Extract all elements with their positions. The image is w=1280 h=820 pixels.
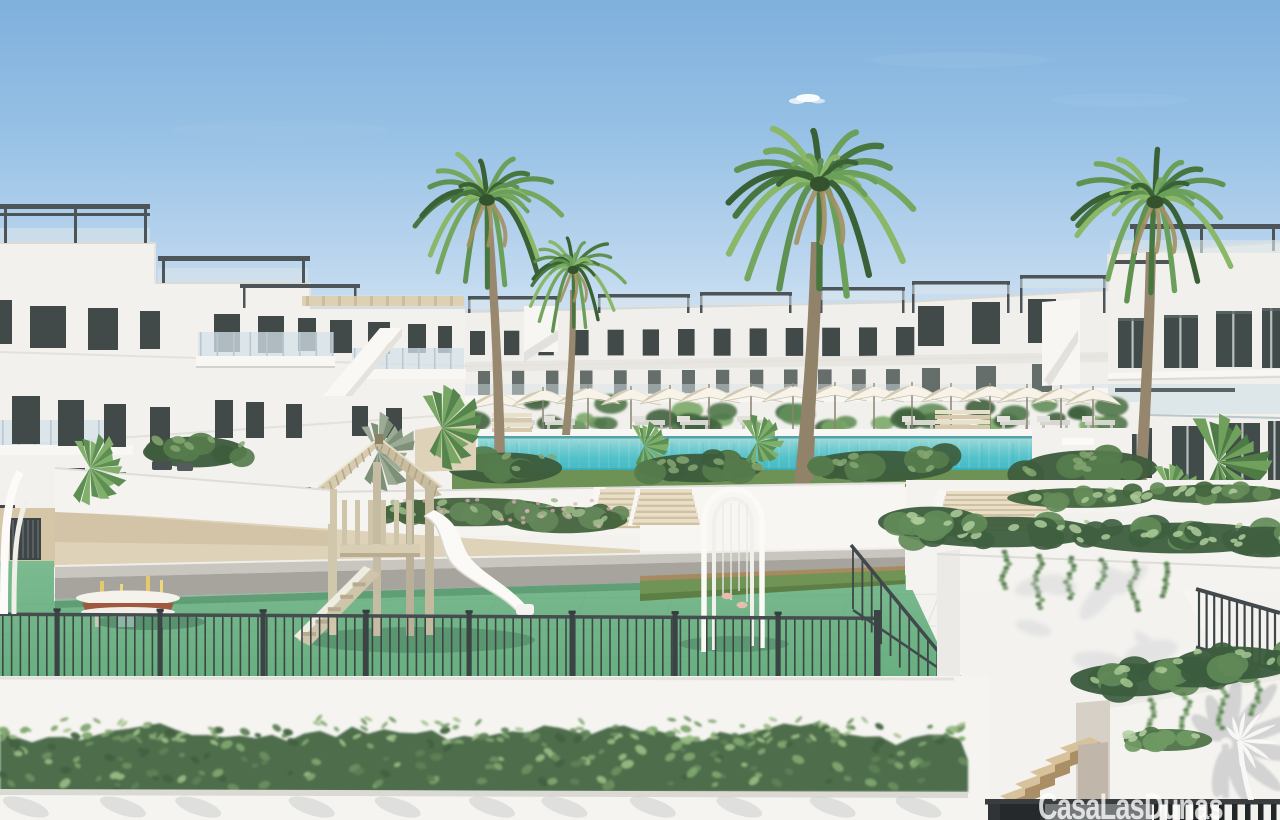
svg-text:CasaLasDunas: CasaLasDunas xyxy=(1038,786,1223,820)
